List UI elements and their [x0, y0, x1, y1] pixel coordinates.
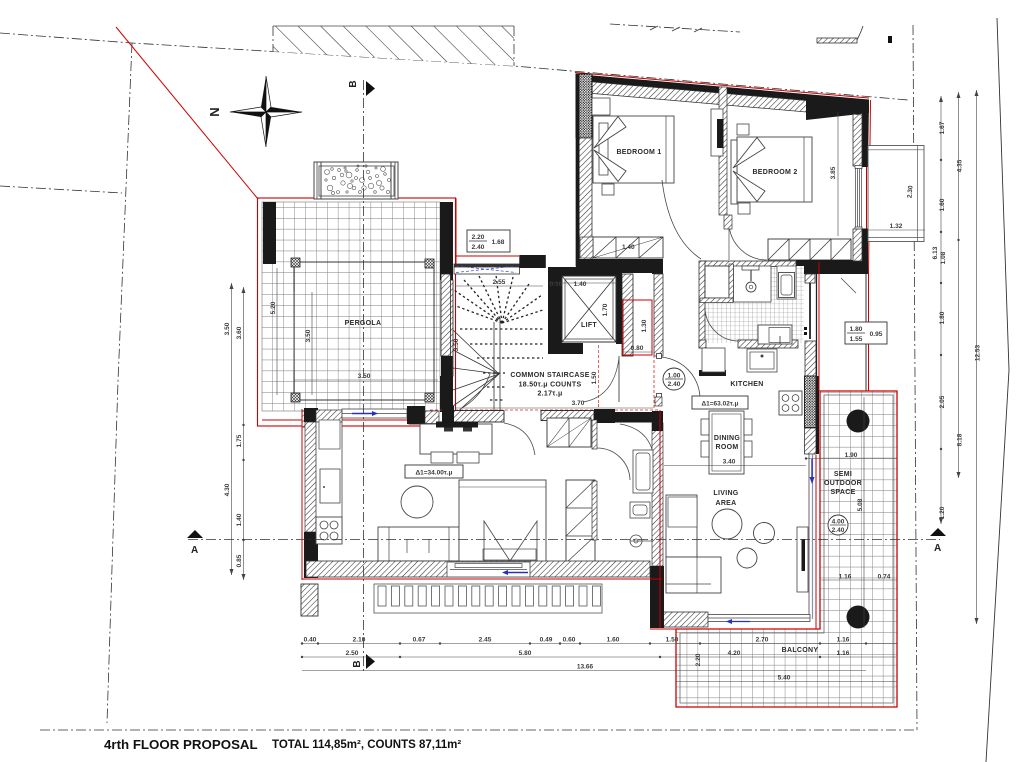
svg-text:3.50: 3.50 [358, 373, 371, 380]
svg-text:0.67: 0.67 [413, 637, 426, 644]
svg-text:AREA: AREA [715, 500, 736, 507]
svg-text:3.40: 3.40 [723, 459, 736, 466]
svg-text:1.55: 1.55 [850, 336, 863, 343]
svg-text:4.20: 4.20 [728, 650, 741, 657]
svg-text:1.50: 1.50 [666, 637, 679, 644]
svg-text:SEMI: SEMI [834, 471, 852, 478]
svg-text:4.35: 4.35 [957, 159, 964, 172]
svg-text:1.70: 1.70 [602, 303, 609, 316]
svg-text:1.40: 1.40 [574, 281, 587, 288]
svg-text:2.20: 2.20 [472, 234, 485, 241]
svg-text:1.50: 1.50 [591, 371, 598, 384]
svg-text:3.50: 3.50 [453, 338, 460, 351]
svg-text:1.08: 1.08 [940, 251, 947, 264]
svg-text:3.50: 3.50 [305, 329, 312, 342]
svg-text:6.13: 6.13 [932, 246, 939, 259]
svg-text:1.30: 1.30 [641, 319, 648, 332]
svg-text:1.40: 1.40 [236, 513, 243, 526]
svg-text:COMMON STAIRCASE: COMMON STAIRCASE [510, 372, 589, 379]
svg-text:5.80: 5.80 [519, 650, 532, 657]
svg-text:1.20: 1.20 [939, 506, 946, 519]
svg-text:LIVING: LIVING [713, 490, 738, 497]
svg-text:3.50: 3.50 [224, 322, 231, 335]
svg-text:Δ1=34.00τ.μ: Δ1=34.00τ.μ [415, 470, 452, 477]
svg-text:2.17τ.μ: 2.17τ.μ [537, 391, 562, 398]
svg-text:4.00: 4.00 [832, 519, 845, 526]
svg-text:1.00: 1.00 [668, 373, 681, 380]
svg-text:1.90: 1.90 [845, 452, 858, 459]
svg-text:1.80: 1.80 [939, 311, 946, 324]
svg-text:KITCHEN: KITCHEN [730, 381, 763, 388]
svg-text:1.32: 1.32 [890, 223, 903, 230]
svg-text:1.60: 1.60 [939, 198, 946, 211]
svg-text:2.40: 2.40 [472, 244, 485, 251]
svg-text:8.18: 8.18 [957, 433, 964, 446]
svg-text:1.40: 1.40 [622, 244, 635, 251]
svg-text:2.55: 2.55 [493, 279, 506, 286]
svg-text:0.85: 0.85 [236, 554, 243, 567]
svg-text:0.10: 0.10 [550, 281, 563, 288]
svg-text:0.95: 0.95 [870, 331, 883, 338]
svg-text:N: N [207, 107, 222, 116]
svg-text:4rth FLOOR PROPOSAL: 4rth FLOOR PROPOSAL [104, 737, 258, 752]
svg-text:2.70: 2.70 [756, 637, 769, 644]
svg-text:2.45: 2.45 [479, 637, 492, 644]
svg-text:2.30: 2.30 [906, 185, 914, 199]
svg-text:2.50: 2.50 [346, 650, 359, 657]
svg-text:4.30: 4.30 [224, 483, 231, 496]
svg-text:BEDROOM 2: BEDROOM 2 [752, 169, 797, 176]
svg-text:12.53: 12.53 [975, 344, 982, 361]
svg-text:1.68: 1.68 [492, 239, 505, 246]
svg-text:A: A [191, 545, 198, 556]
svg-text:0.49: 0.49 [540, 637, 553, 644]
svg-text:PERGOLA: PERGOLA [345, 320, 382, 327]
svg-text:BALCONY: BALCONY [782, 647, 819, 654]
svg-text:LIFT: LIFT [581, 322, 597, 329]
svg-text:B: B [348, 80, 359, 87]
svg-text:0.74: 0.74 [878, 574, 891, 581]
svg-text:18.50τ.μ COUNTS: 18.50τ.μ COUNTS [519, 382, 582, 389]
svg-text:1.16: 1.16 [837, 637, 850, 644]
svg-text:A: A [934, 543, 941, 554]
svg-text:1.67: 1.67 [939, 121, 946, 134]
svg-text:3.60: 3.60 [236, 326, 243, 339]
svg-text:1.16: 1.16 [837, 650, 850, 657]
svg-text:2.05: 2.05 [939, 395, 946, 408]
svg-text:5.20: 5.20 [270, 301, 277, 314]
svg-text:5.40: 5.40 [778, 675, 791, 682]
svg-text:DINING: DINING [714, 435, 741, 442]
svg-text:5.08: 5.08 [857, 498, 864, 511]
svg-text:1.16: 1.16 [839, 574, 852, 581]
svg-text:2.20: 2.20 [695, 653, 702, 666]
svg-text:1.75: 1.75 [236, 434, 243, 447]
svg-text:2.40: 2.40 [832, 527, 845, 534]
svg-text:SPACE: SPACE [830, 489, 855, 496]
svg-text:OUTDOOR: OUTDOOR [824, 480, 862, 487]
svg-text:1.60: 1.60 [607, 637, 620, 644]
svg-text:2.40: 2.40 [668, 381, 681, 388]
svg-text:TOTAL 114,85m², COUNTS 87,11m²: TOTAL 114,85m², COUNTS 87,11m² [272, 739, 461, 751]
svg-text:0.80: 0.80 [631, 345, 644, 352]
svg-text:0.60: 0.60 [563, 637, 576, 644]
svg-text:3.85: 3.85 [830, 166, 837, 179]
svg-text:B: B [352, 660, 363, 667]
svg-text:3.70: 3.70 [572, 400, 585, 407]
svg-text:13.66: 13.66 [577, 664, 594, 671]
svg-text:1.80: 1.80 [850, 326, 863, 333]
svg-text:ROOM: ROOM [716, 444, 739, 451]
svg-text:BEDROOM 1: BEDROOM 1 [616, 149, 661, 156]
svg-text:0.40: 0.40 [304, 637, 317, 644]
svg-text:Δ1=63.02τ.μ: Δ1=63.02τ.μ [701, 401, 738, 408]
